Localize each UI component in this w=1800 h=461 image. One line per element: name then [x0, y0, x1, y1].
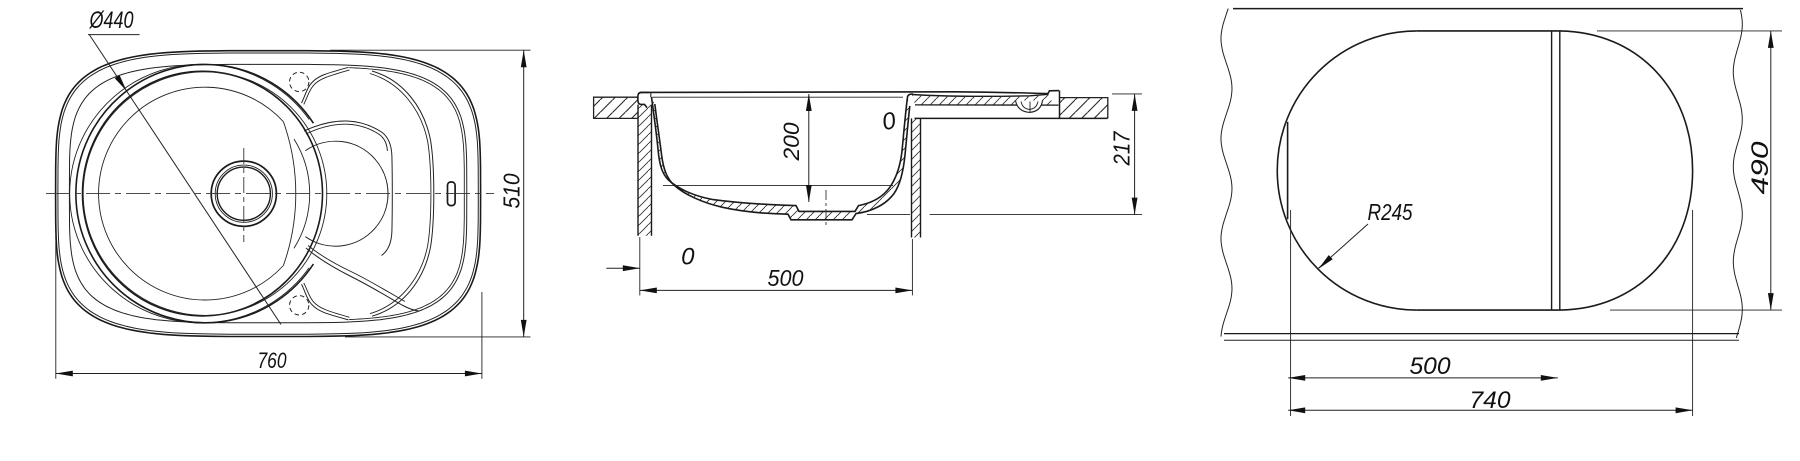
svg-text:490: 490: [1747, 141, 1774, 195]
svg-text:Ø440: Ø440: [89, 7, 134, 34]
svg-text:200: 200: [779, 122, 804, 162]
svg-text:0: 0: [880, 107, 899, 136]
svg-text:760: 760: [258, 348, 288, 373]
svg-text:500: 500: [1410, 353, 1452, 380]
svg-text:R245: R245: [1368, 199, 1413, 225]
svg-text:500: 500: [768, 265, 804, 291]
svg-text:510: 510: [499, 173, 525, 208]
svg-text:740: 740: [1470, 387, 1512, 414]
svg-text:217: 217: [1109, 130, 1135, 166]
svg-text:0: 0: [681, 244, 695, 271]
